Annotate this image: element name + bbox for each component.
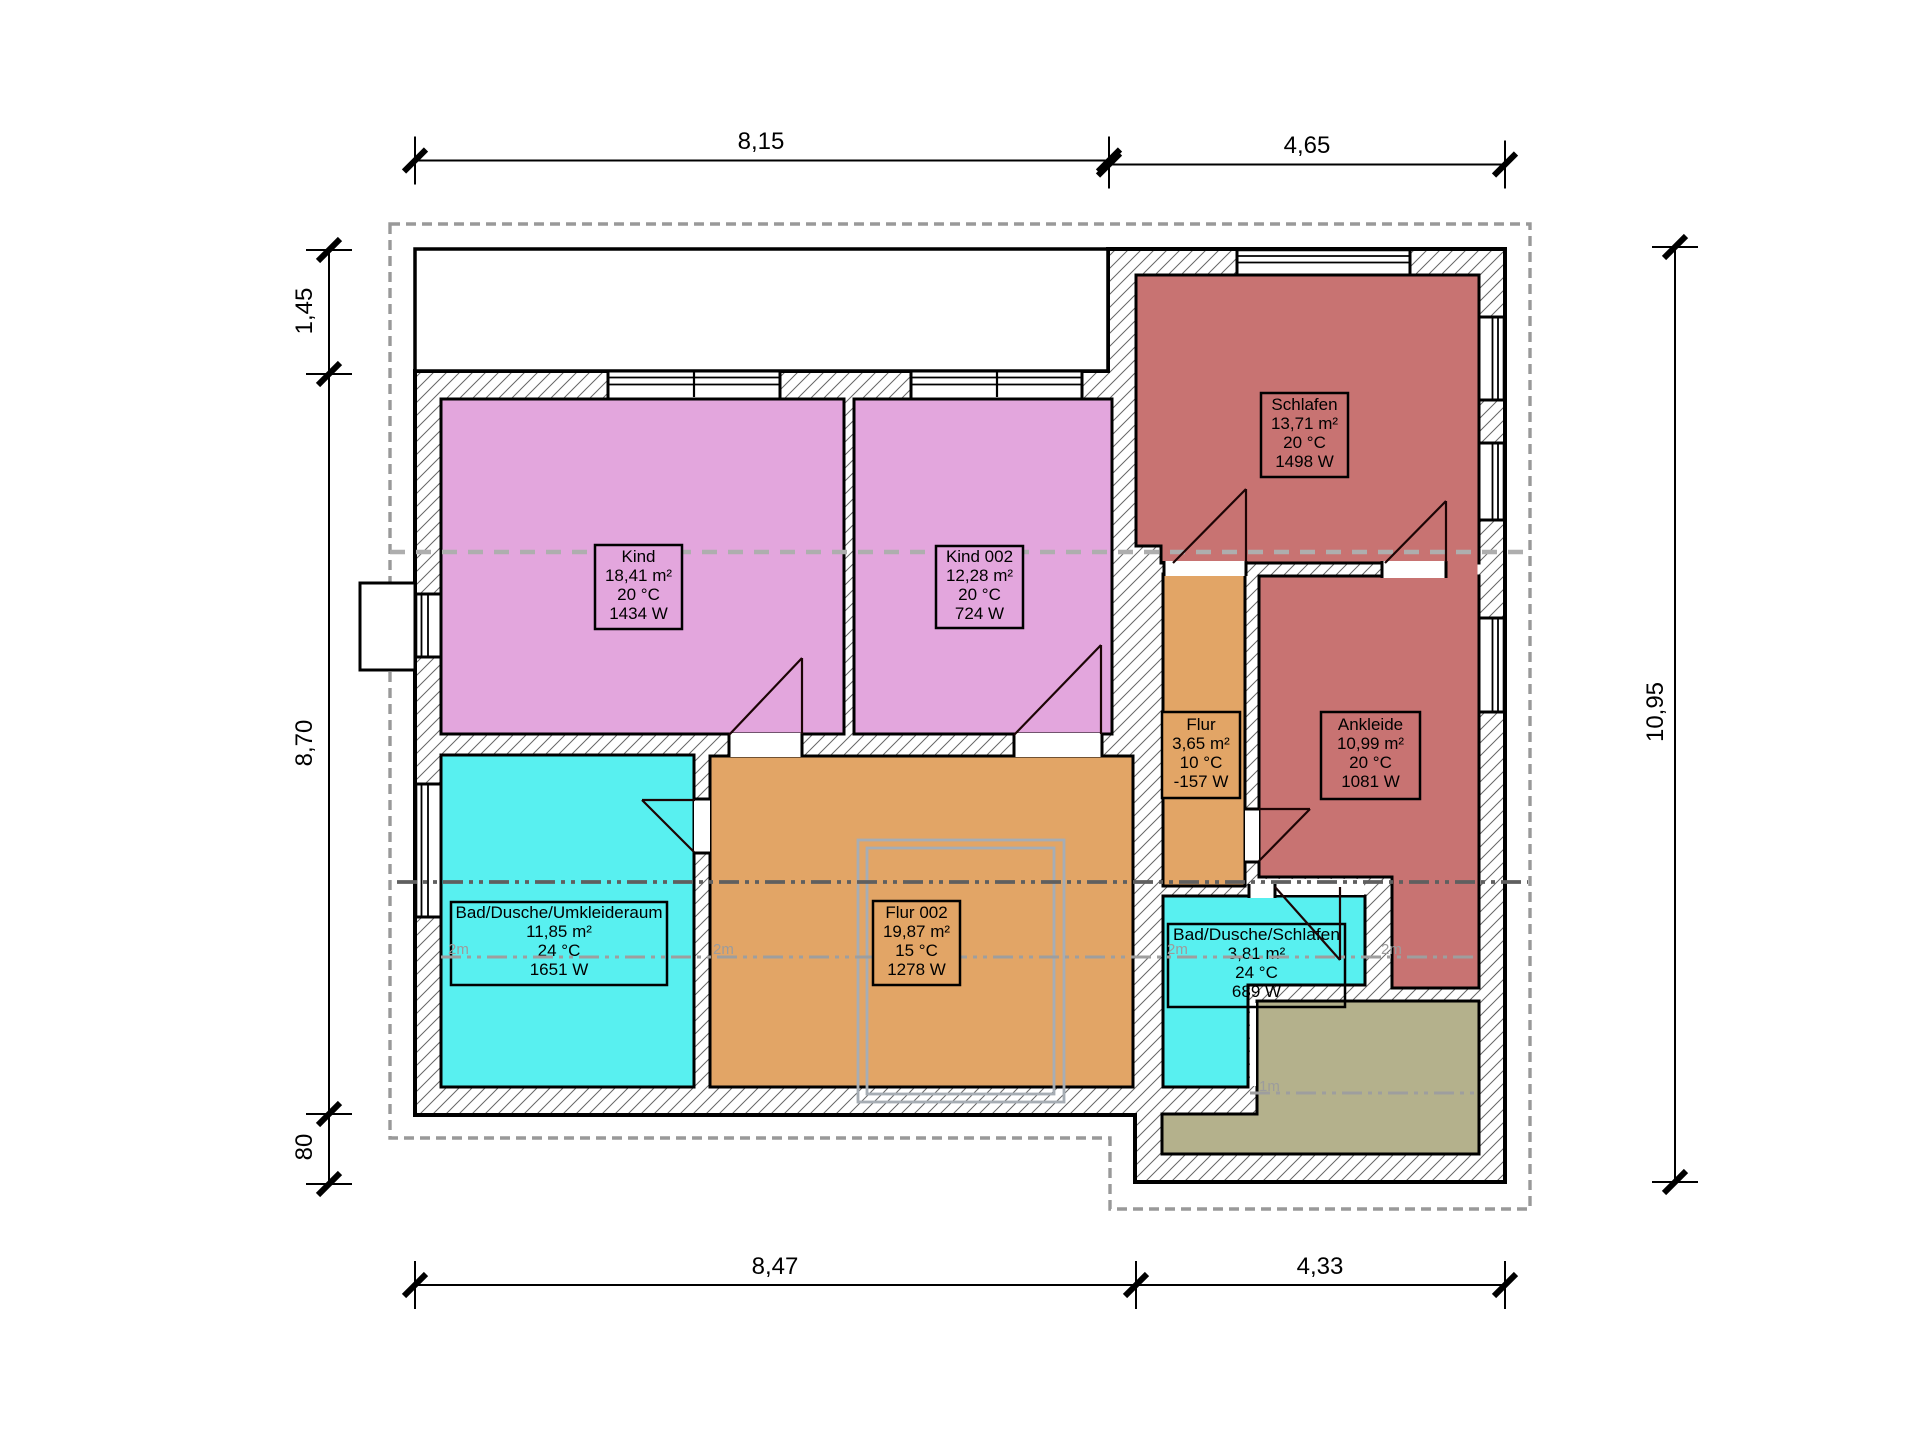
svg-text:10,95: 10,95 [1642, 682, 1669, 742]
svg-text:Flur 002: Flur 002 [885, 903, 947, 922]
svg-text:20 °C: 20 °C [1349, 753, 1392, 772]
svg-text:11,85 m²: 11,85 m² [526, 922, 592, 941]
svg-text:Bad/Dusche/Umkleideraum: Bad/Dusche/Umkleideraum [456, 903, 663, 922]
svg-text:10,99 m²: 10,99 m² [1337, 734, 1404, 753]
svg-text:724 W: 724 W [955, 604, 1004, 623]
svg-text:1434 W: 1434 W [609, 604, 668, 623]
svg-text:24 °C: 24 °C [1235, 963, 1278, 982]
svg-text:2m: 2m [713, 941, 734, 958]
svg-text:1278 W: 1278 W [887, 960, 946, 979]
svg-text:2m: 2m [1381, 941, 1402, 958]
svg-text:Schlafen: Schlafen [1271, 395, 1337, 414]
svg-text:18,41 m²: 18,41 m² [605, 566, 672, 585]
svg-text:8,15: 8,15 [738, 128, 785, 155]
svg-text:19,87 m²: 19,87 m² [883, 922, 950, 941]
svg-text:2m: 2m [1167, 941, 1188, 958]
svg-text:4,33: 4,33 [1297, 1253, 1344, 1280]
svg-text:Bad/Dusche/Schlafen: Bad/Dusche/Schlafen [1173, 925, 1340, 944]
svg-text:10 °C: 10 °C [1180, 753, 1223, 772]
svg-text:20 °C: 20 °C [958, 585, 1001, 604]
svg-text:3,81 m²: 3,81 m² [1228, 944, 1286, 963]
svg-text:-157 W: -157 W [1174, 772, 1229, 791]
svg-text:Flur: Flur [1186, 715, 1216, 734]
svg-text:1651 W: 1651 W [530, 960, 589, 979]
svg-text:Ankleide: Ankleide [1338, 715, 1403, 734]
svg-text:12,28 m²: 12,28 m² [946, 566, 1013, 585]
svg-text:8,70: 8,70 [291, 720, 318, 767]
svg-text:20 °C: 20 °C [1283, 433, 1326, 452]
svg-text:689 W: 689 W [1232, 982, 1281, 1001]
svg-text:8,47: 8,47 [752, 1253, 799, 1280]
svg-text:1m: 1m [1259, 1078, 1280, 1095]
svg-text:3,65 m²: 3,65 m² [1172, 734, 1230, 753]
svg-text:13,71 m²: 13,71 m² [1271, 414, 1338, 433]
svg-text:4,65: 4,65 [1284, 132, 1331, 159]
svg-text:1081 W: 1081 W [1341, 772, 1400, 791]
svg-text:20 °C: 20 °C [617, 585, 660, 604]
svg-text:2m: 2m [448, 941, 469, 958]
svg-text:Kind 002: Kind 002 [946, 547, 1013, 566]
svg-text:Kind: Kind [621, 547, 655, 566]
svg-text:1,45: 1,45 [291, 288, 318, 335]
svg-text:15 °C: 15 °C [895, 941, 938, 960]
svg-text:80: 80 [291, 1134, 318, 1161]
svg-text:1498 W: 1498 W [1275, 452, 1334, 471]
